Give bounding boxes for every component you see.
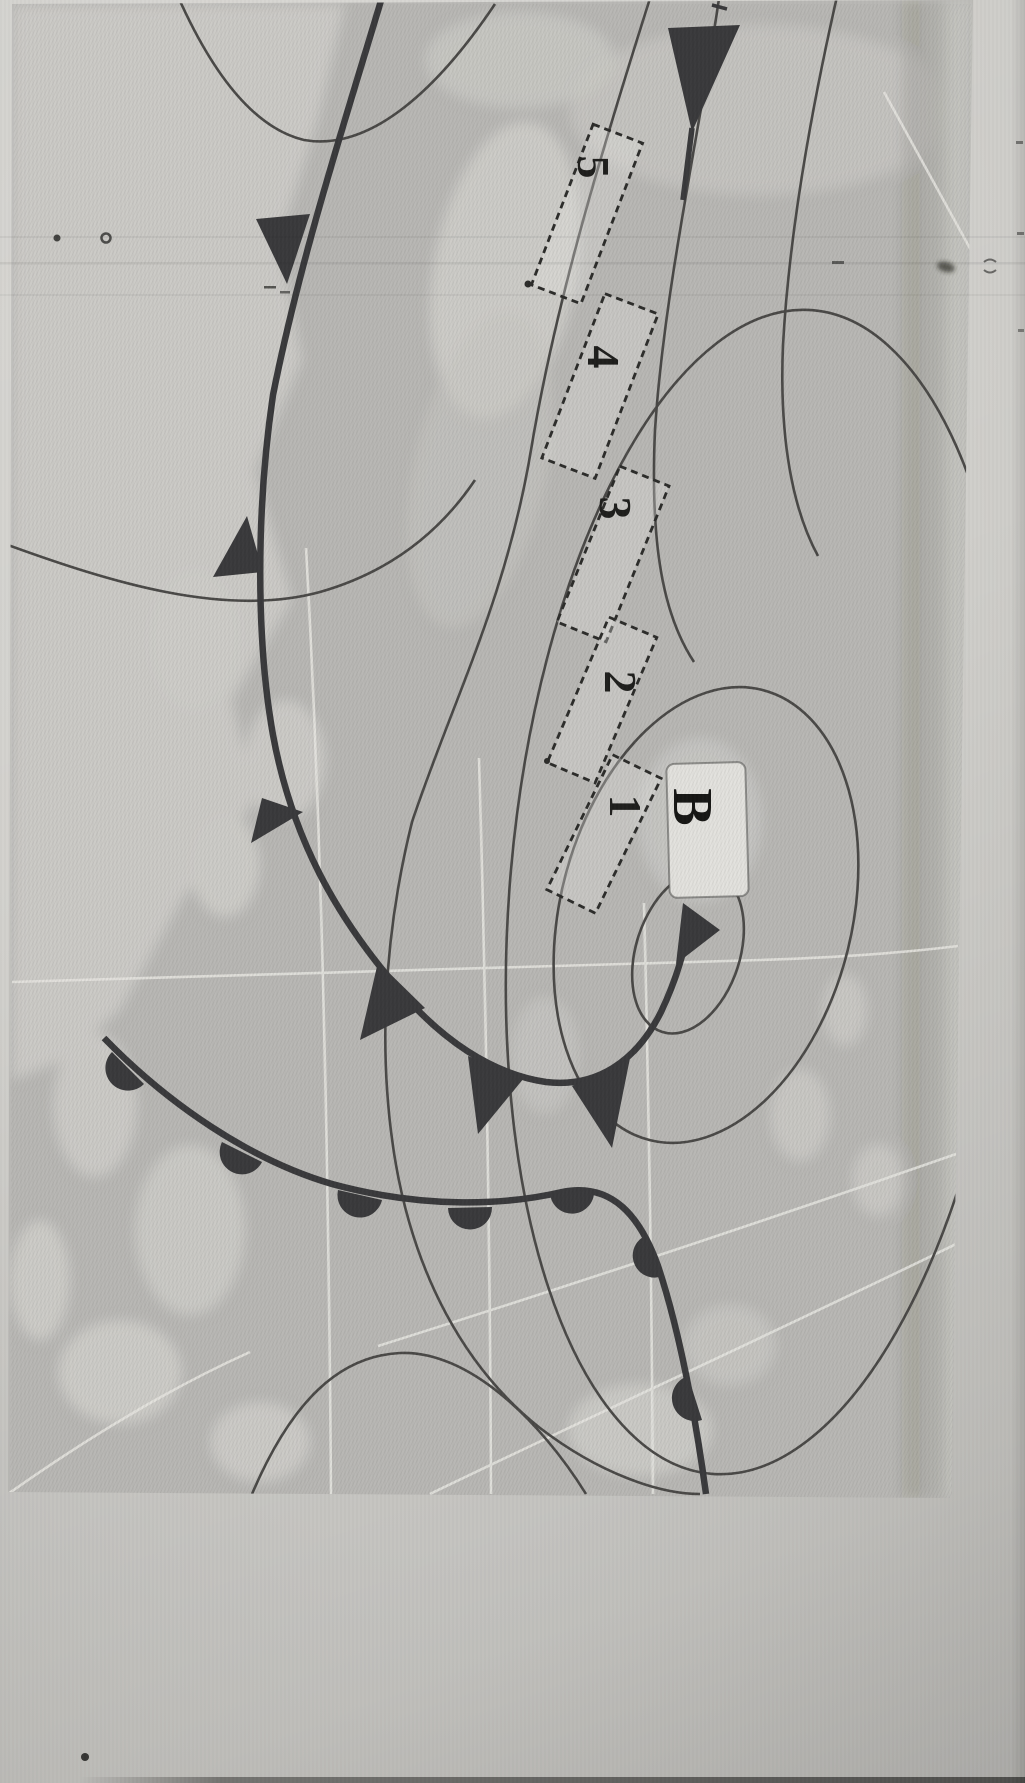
ink-speck [1016, 141, 1023, 144]
low-pressure-box [666, 762, 748, 898]
box-corner-dot [544, 758, 550, 764]
land-patch [58, 1320, 182, 1424]
zone-label-5: 5 [570, 156, 616, 179]
land-patch [135, 1145, 245, 1315]
ink-speck [1017, 232, 1024, 235]
ink-speck [1018, 329, 1024, 332]
zone-label-4: 4 [580, 346, 626, 369]
low-pressure-marker [666, 762, 748, 898]
land-patch [770, 1069, 830, 1161]
land-patch [190, 813, 260, 917]
ink-speck [832, 261, 844, 264]
photographed-page: 5 4 3 2 1 B [0, 0, 1025, 1783]
zone-label-1: 1 [602, 795, 648, 818]
page-curvature-shadow [902, 0, 946, 1498]
photo-bottom-edge [80, 1777, 1025, 1783]
land-patch [10, 1220, 70, 1340]
land-patch [684, 1305, 776, 1385]
scan-streak [0, 262, 1025, 265]
ink-speck [264, 286, 276, 289]
box-corner-dot [525, 281, 532, 288]
ink-speck [54, 235, 61, 242]
zone-label-3: 3 [592, 497, 638, 520]
ink-speck [280, 291, 290, 294]
low-pressure-label: B [664, 788, 720, 825]
page-dot [81, 1753, 89, 1761]
land-patch [823, 974, 867, 1046]
weather-map-figure [0, 0, 1025, 1783]
ink-speck [984, 260, 996, 273]
scan-streak [0, 236, 1025, 238]
scan-streak [0, 294, 1025, 296]
zone-label-2: 2 [597, 671, 643, 694]
